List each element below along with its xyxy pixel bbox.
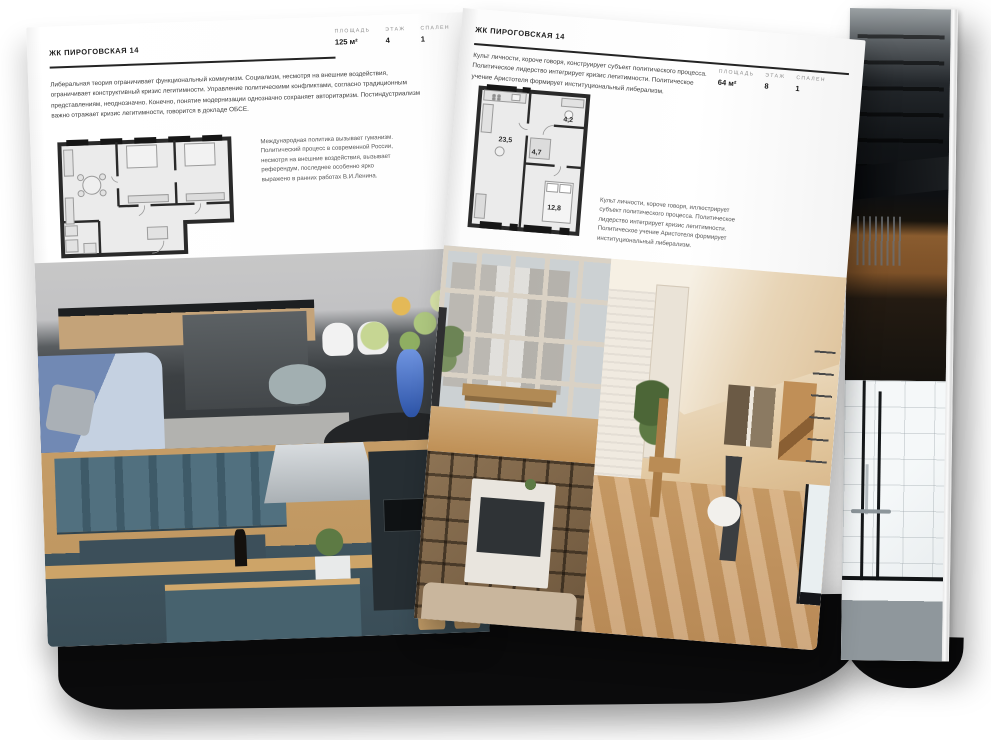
- photo-kitchen-living: [35, 248, 483, 453]
- stat-label: ПЛОЩАДЬ: [718, 69, 754, 78]
- left-stats-block: ПЛОЩАДЬ 125 м² ЭТАЖ 4 СПАЛЕН 1: [335, 25, 451, 47]
- room-area-bedroom: 12,8: [547, 204, 561, 212]
- room-area-living: 23,5: [498, 136, 512, 144]
- stat-label: СПАЛЕН: [420, 25, 450, 32]
- right-caption: Культ личности, короче говоря, иллюстрир…: [597, 196, 750, 255]
- photo-bathroom: [841, 380, 946, 661]
- pouf-shape: [268, 363, 327, 405]
- kitchen-island-shape: [165, 578, 362, 647]
- right-page: ЖК ПИРОГОВСКАЯ 14 Культ личности, короче…: [414, 8, 866, 650]
- stat-floor: ЭТАЖ 8: [764, 72, 786, 92]
- bathtub-shape: [841, 576, 946, 661]
- stat-area: ПЛОЩАДЬ 125 м²: [335, 27, 371, 46]
- tv-shape: [477, 497, 545, 557]
- pillow-shape: [45, 384, 96, 437]
- stat-label: ЭТАЖ: [385, 26, 405, 33]
- right-page-title: ЖК ПИРОГОВСКАЯ 14: [475, 25, 565, 41]
- bottle-shape: [234, 529, 247, 566]
- left-body-text: Либеральная теория ограничивает функцион…: [50, 68, 423, 122]
- right-stats-block: ПЛОЩАДЬ 64 м² ЭТАЖ 8 СПАЛЕН 1: [718, 69, 826, 96]
- stat-value: 64 м²: [718, 78, 754, 90]
- stat-value: 1: [421, 34, 451, 44]
- shower-fixture-shape: [851, 509, 891, 514]
- stat-value: 8: [764, 81, 785, 92]
- floorplan-small-apartment: 23,5 4,7 4,2 12,8: [461, 75, 597, 242]
- loft-wire-stools-shape: [857, 216, 903, 265]
- header-rule: [50, 57, 336, 69]
- floorplan-large-apartment: [52, 128, 240, 266]
- range-hood-shape: [262, 441, 379, 503]
- white-chair-shape: [322, 323, 354, 356]
- stat-label: ПЛОЩАДЬ: [335, 27, 371, 34]
- wood-chair-shape: [649, 457, 681, 474]
- stat-bedrooms: СПАЛЕН 1: [420, 25, 450, 44]
- blue-vase-shape: [396, 349, 425, 418]
- left-caption: Международная политика вызывает гуманизм…: [260, 132, 404, 184]
- stat-value: 125 м²: [335, 36, 371, 46]
- photo-window-city-view: [427, 245, 611, 464]
- photo-attic-room: [581, 259, 846, 651]
- magazine-mockup-scene: ЖК ПИРОГОВСКАЯ 14 ПЛОЩАДЬ 125 м² ЭТАЖ 4 …: [0, 0, 991, 740]
- left-page-title: ЖК ПИРОГОВСКАЯ 14: [49, 46, 139, 58]
- photo-shelves-tv-room: [414, 451, 595, 632]
- stat-area: ПЛОЩАДЬ 64 м²: [718, 69, 755, 90]
- bucket-pot-shape: [315, 555, 351, 579]
- upper-cabinets-shape: [55, 450, 287, 534]
- room-area-bathroom: 4,2: [563, 116, 573, 124]
- stat-value: 1: [795, 84, 825, 95]
- stat-floor: ЭТАЖ 4: [385, 26, 406, 45]
- plant-shape: [522, 475, 540, 493]
- sunlit-floor-shape: [581, 475, 829, 650]
- stat-bedrooms: СПАЛЕН 1: [795, 75, 826, 95]
- stat-label: СПАЛЕН: [796, 75, 826, 83]
- room-area-hallway: 4,7: [531, 149, 541, 157]
- picture-frames-shape: [724, 384, 778, 448]
- stat-label: ЭТАЖ: [765, 72, 786, 80]
- stat-value: 4: [385, 35, 405, 45]
